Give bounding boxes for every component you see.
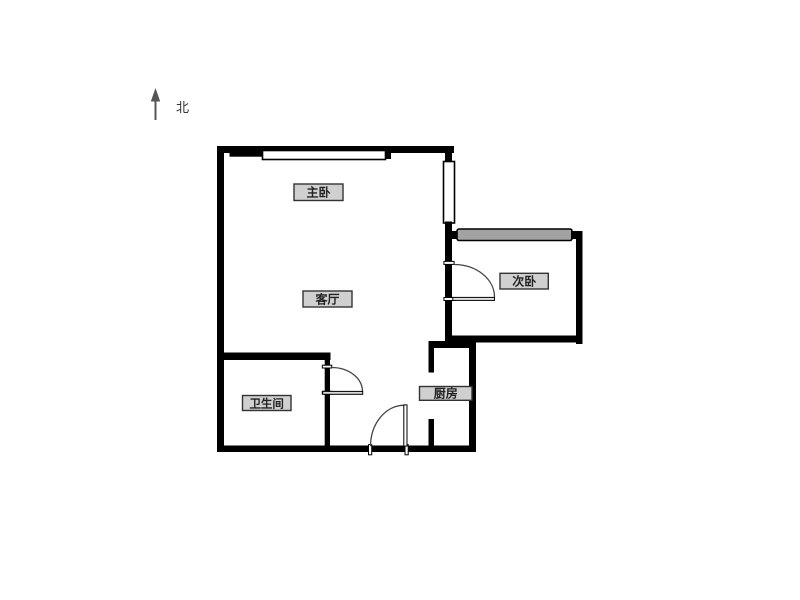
svg-text:次卧: 次卧 — [512, 274, 536, 289]
svg-text:卫生间: 卫生间 — [249, 396, 284, 410]
svg-text:北: 北 — [176, 100, 189, 115]
svg-text:主卧: 主卧 — [306, 185, 330, 200]
svg-text:客厅: 客厅 — [314, 292, 339, 307]
svg-text:厨房: 厨房 — [434, 386, 458, 401]
